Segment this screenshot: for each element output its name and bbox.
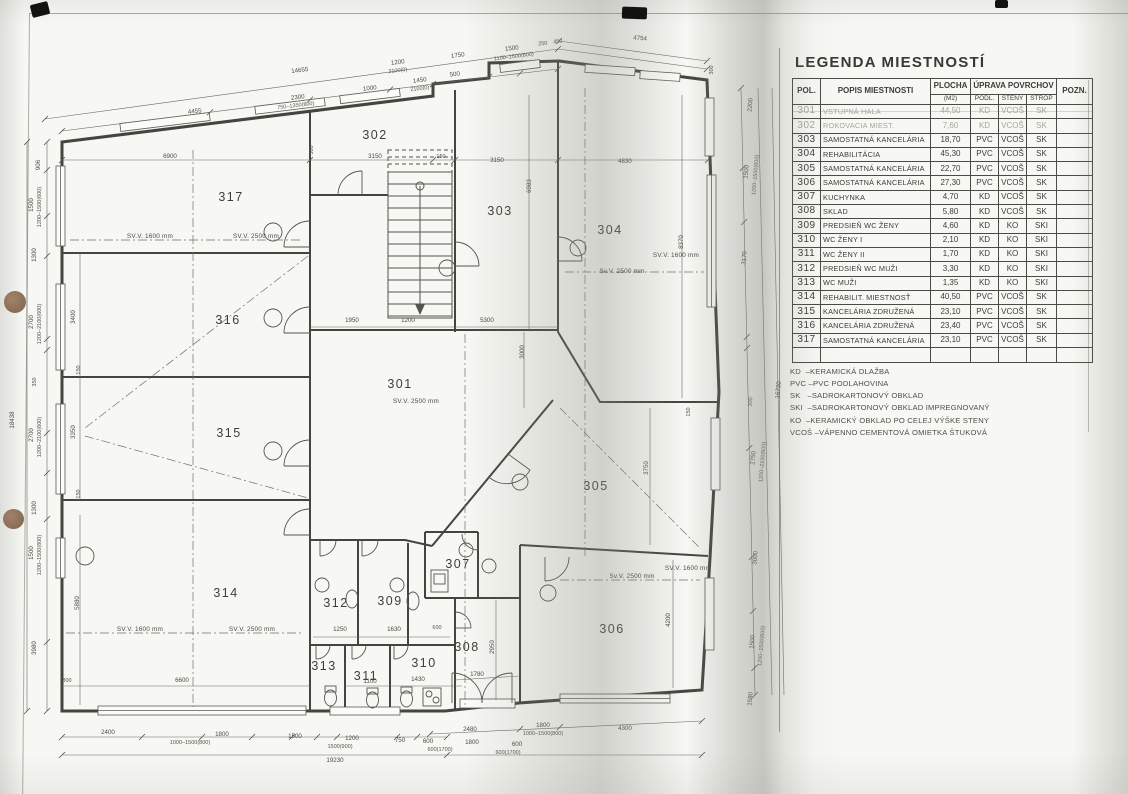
legend-cell-podl: KD <box>971 276 999 290</box>
dimension-label: 500 <box>449 70 461 78</box>
legend-cell-strop: SK <box>1027 305 1057 319</box>
dimension-label: 1500 <box>288 733 302 740</box>
legend-cell-pozn <box>1057 290 1093 304</box>
legend-note: SK –SADROKARTONOVÝ OBKLAD <box>790 390 990 402</box>
dimension-label: 1300 <box>31 248 38 262</box>
legend-cell-pozn <box>1057 233 1093 247</box>
room-number: 313 <box>311 659 336 673</box>
room-number: 303 <box>487 204 512 218</box>
legend-cell-strop: SK <box>1027 319 1057 333</box>
dimension-label: 1200 <box>391 58 406 67</box>
dimension-label: 600(1700) <box>427 747 452 753</box>
legend-cell-plocha: 27,30 <box>931 176 971 190</box>
legend-cell-steny: KO <box>999 247 1027 261</box>
dimension-label: 1200–1500(800) <box>37 535 43 576</box>
legend-cell-steny: VCOŠ <box>999 333 1027 347</box>
punch-hole-upper <box>4 291 26 313</box>
room-number: 307 <box>445 557 470 571</box>
legend-row: 301VSTUPNÁ HALA44,50KDVCOŠSK <box>793 105 1093 119</box>
dimension-label: 8370 <box>678 235 685 249</box>
legend-cell-pol: 316 <box>793 319 821 333</box>
legend-cell-pol: 315 <box>793 305 821 319</box>
legend-table: POL. POPIS MIESTNOSTI PLOCHA ÚPRAVA POVR… <box>792 78 1093 363</box>
ceiling-height-label: SV.V. 1600 mm <box>653 252 699 259</box>
legend-cell-popis: KUCHYNKA <box>821 190 931 204</box>
legend-header-strop: STROP <box>1027 95 1057 105</box>
legend-header-plocha: PLOCHA <box>931 79 971 95</box>
legend-cell-pozn <box>1057 333 1093 347</box>
legend-row: 302ROKOVACIA MIEST.7,60KDVCOŠSK <box>793 119 1093 133</box>
legend-cell-strop: SK <box>1027 190 1057 204</box>
dimension-label: 1800 <box>536 722 550 729</box>
legend-cell-strop: SKI <box>1027 247 1057 261</box>
legend-cell-podl: KD <box>971 233 999 247</box>
dimension-label: 3400 <box>70 310 77 324</box>
legend-row: 308SKLAD5,80KDVCOŠSK <box>793 205 1093 219</box>
dimension-label: 2950 <box>489 640 496 654</box>
legend-cell-podl: PVC <box>971 333 999 347</box>
dimension-label: 1500 <box>28 546 35 560</box>
dimension-label: 2100(0) <box>388 67 408 75</box>
dimension-label: 3000 <box>519 345 526 359</box>
dimension-label: 600 <box>512 741 523 748</box>
legend-cell-pozn <box>1057 190 1093 204</box>
dimension-label: 1580 <box>746 691 754 706</box>
room-number: 317 <box>218 190 243 204</box>
legend-cell-empty <box>793 348 821 363</box>
ceiling-height-label: SV.V. 1600 mm <box>127 233 173 240</box>
dimension-label: 1430 <box>411 676 425 683</box>
dimension-label: 150 <box>76 365 82 374</box>
legend-cell-plocha: 23,10 <box>931 333 971 347</box>
legend-row: 312PREDSIEŇ WC MUŽI3,30KDKOSKI <box>793 262 1093 276</box>
legend-cell-steny: VCOŠ <box>999 119 1027 133</box>
legend-cell-pozn <box>1057 205 1093 219</box>
legend-cell-steny: VCOŠ <box>999 290 1027 304</box>
legend-cell-pozn <box>1057 105 1093 119</box>
legend-cell-pozn <box>1057 247 1093 261</box>
dimension-label: 1500 <box>742 164 750 179</box>
ceiling-height-label: Sv.V. 2500 mm <box>609 573 654 580</box>
legend-cell-pol: 310 <box>793 233 821 247</box>
legend-cell-podl: PVC <box>971 176 999 190</box>
scan-blot-top-center <box>622 7 647 20</box>
legend-cell-podl: PVC <box>971 133 999 147</box>
legend-cell-popis: KANCELÁRIA ZDRUŽENÁ <box>821 319 931 333</box>
dimension-label: 350 <box>32 377 38 386</box>
dimension-label: 1500 <box>28 198 35 212</box>
dimension-label: 4754 <box>633 35 648 43</box>
legend-row: 305SAMOSTATNÁ KANCELÁRIA22,70PVCVCOŠSK <box>793 162 1093 176</box>
legend-row: 309PREDSIEŇ WC ŽENY4,60KDKOSKI <box>793 219 1093 233</box>
legend-cell-steny: VCOŠ <box>999 205 1027 219</box>
legend-header-steny: STENY <box>999 95 1027 105</box>
dimension-label: 1200–2100(600) <box>37 304 43 345</box>
dimension-label: 450 <box>553 38 563 45</box>
legend-cell-pol: 311 <box>793 247 821 261</box>
legend-cell-pozn <box>1057 176 1093 190</box>
dimension-label: 1750 <box>451 51 466 60</box>
dimension-label: 2700 <box>28 428 35 442</box>
legend-cell-pozn <box>1057 262 1093 276</box>
ceiling-height-label: SV.V. 2500 mm <box>393 398 439 405</box>
legend-cell-pozn <box>1057 276 1093 290</box>
room-number: 309 <box>377 594 402 608</box>
legend-cell-plocha: 40,50 <box>931 290 971 304</box>
room-number: 301 <box>387 377 412 391</box>
legend-cell-popis: REHABILIT. MIESTNOSŤ <box>821 290 931 304</box>
dimension-label: 1780 <box>470 671 484 678</box>
dimension-label: 150 <box>436 154 445 160</box>
legend-row: 317SAMOSTATNÁ KANCELÁRIA23,10PVCVCOŠSK <box>793 333 1093 347</box>
dimension-label: 1500 <box>748 634 756 649</box>
legend-cell-empty <box>931 348 971 363</box>
legend-cell-pozn <box>1057 305 1093 319</box>
dimension-label: 250 <box>538 40 548 47</box>
legend-cell-pol: 301 <box>793 105 821 119</box>
scan-blot-top-right <box>995 0 1008 8</box>
legend-cell-popis: WC ŽENY I <box>821 233 931 247</box>
legend-cell-plocha: 44,50 <box>931 105 971 119</box>
legend-notes: KD –KERAMICKÁ DLAŽBAPVC –PVC PODLAHOVINA… <box>790 366 990 439</box>
dimension-label: 1200–2100(600) <box>37 417 43 458</box>
dimension-label: 1200 <box>345 735 359 742</box>
dimension-label: 750 <box>395 737 406 744</box>
legend-cell-pozn <box>1057 119 1093 133</box>
legend-cell-popis: KANCELÁRIA ZDRUŽENÁ <box>821 305 931 319</box>
dimension-label: 5880 <box>74 596 81 610</box>
legend-row: 315KANCELÁRIA ZDRUŽENÁ23,10PVCVCOŠSK <box>793 305 1093 319</box>
legend-cell-popis: SAMOSTATNÁ KANCELÁRIA <box>821 133 931 147</box>
legend-cell-podl: KD <box>971 205 999 219</box>
legend-cell-podl: PVC <box>971 319 999 333</box>
axis-lines <box>66 88 704 707</box>
room-number: 316 <box>215 313 240 327</box>
legend-cell-steny: KO <box>999 219 1027 233</box>
legend-cell-pol: 306 <box>793 176 821 190</box>
legend-cell-pol: 302 <box>793 119 821 133</box>
dimension-label: 3000 <box>751 550 759 565</box>
dimension-label: 3750 <box>643 461 650 475</box>
legend-cell-empty <box>999 348 1027 363</box>
legend-cell-podl: PVC <box>971 290 999 304</box>
legend-cell-popis: VSTUPNÁ HALA <box>821 105 931 119</box>
legend-cell-popis: PREDSIEŇ WC MUŽI <box>821 262 931 276</box>
room-number: 306 <box>599 622 624 636</box>
legend-cell-plocha: 4,70 <box>931 190 971 204</box>
legend-row: 306SAMOSTATNÁ KANCELÁRIA27,30PVCVCOŠSK <box>793 176 1093 190</box>
dimension-label: 3170 <box>740 250 748 265</box>
dimension-label: 300 <box>62 678 71 684</box>
legend-cell-plocha: 1,35 <box>931 276 971 290</box>
punch-hole-lower <box>3 509 24 529</box>
legend-cell-popis: WC MUŽI <box>821 276 931 290</box>
dimension-label: 2480 <box>463 726 477 733</box>
dimension-label: 14655 <box>291 66 309 75</box>
legend-cell-popis: ROKOVACIA MIEST. <box>821 119 931 133</box>
legend-cell-podl: KD <box>971 190 999 204</box>
legend-row: 316KANCELÁRIA ZDRUŽENÁ23,40PVCVCOŠSK <box>793 319 1093 333</box>
dimension-label: 3150 <box>368 153 382 160</box>
legend-cell-podl: PVC <box>971 147 999 161</box>
dimension-label: 1450 <box>413 76 428 85</box>
room-number: 302 <box>362 128 387 142</box>
room-number: 312 <box>323 596 348 610</box>
legend-cell-steny: VCOŠ <box>999 305 1027 319</box>
dimension-label: 1200–1500(600) <box>751 154 761 195</box>
dimension-label: 150 <box>686 407 692 416</box>
legend-cell-steny: VCOŠ <box>999 162 1027 176</box>
legend-cell-plocha: 22,70 <box>931 162 971 176</box>
legend-header-plocha-unit: (M2) <box>931 95 971 105</box>
legend-cell-empty <box>821 348 931 363</box>
dimension-label: 1500 <box>505 44 520 53</box>
legend-cell-empty <box>1027 348 1057 363</box>
dimension-label: 1200–1500(600) <box>757 625 767 666</box>
legend-cell-popis: REHABILITÁCIA <box>821 147 931 161</box>
dimension-label: 2700 <box>28 315 35 329</box>
legend-cell-empty <box>971 348 999 363</box>
ceiling-height-label: SV.V. 2500 mm <box>233 233 279 240</box>
legend-cell-steny: VCOŠ <box>999 176 1027 190</box>
legend-cell-strop: SKI <box>1027 276 1057 290</box>
legend-row: 313WC MUŽI1,35KDKOSKI <box>793 276 1093 290</box>
legend-cell-strop: SK <box>1027 176 1057 190</box>
legend-cell-pozn <box>1057 319 1093 333</box>
dimension-label: 1800 <box>215 731 229 738</box>
legend-cell-strop: SK <box>1027 133 1057 147</box>
legend-cell-pol: 317 <box>793 333 821 347</box>
legend-cell-steny: VCOŠ <box>999 105 1027 119</box>
legend-cell-popis: SAMOSTATNÁ KANCELÁRIA <box>821 333 931 347</box>
legend-cell-strop: SKI <box>1027 262 1057 276</box>
ceiling-height-label: SV.V. 1600 mm <box>117 626 163 633</box>
legend-cell-steny: KO <box>999 276 1027 290</box>
legend-cell-pol: 303 <box>793 133 821 147</box>
room-number: 308 <box>454 640 479 654</box>
legend-cell-popis: PREDSIEŇ WC ŽENY <box>821 219 931 233</box>
dimension-label: 600 <box>432 625 441 631</box>
legend-cell-steny: VCOŠ <box>999 190 1027 204</box>
legend-cell-plocha: 5,80 <box>931 205 971 219</box>
legend-cell-plocha: 1,70 <box>931 247 971 261</box>
legend-cell-podl: PVC <box>971 162 999 176</box>
dimension-label: 1100 <box>363 678 377 685</box>
legend-row: 307KUCHYNKA4,70KDVCOŠSK <box>793 190 1093 204</box>
legend-header-pol: POL. <box>793 79 821 105</box>
dimension-label: 6900 <box>163 153 177 160</box>
legend-cell-pol: 312 <box>793 262 821 276</box>
legend-cell-plocha: 7,60 <box>931 119 971 133</box>
legend-header-pozn: POZN. <box>1057 79 1093 105</box>
dimension-label: 3350 <box>70 425 77 439</box>
room-number: 315 <box>216 426 241 440</box>
dimension-label: 300 <box>709 65 715 74</box>
legend-cell-strop: SK <box>1027 333 1057 347</box>
room-number: 310 <box>411 656 436 670</box>
legend-row: 311WC ŽENY II1,70KDKOSKI <box>793 247 1093 261</box>
legend-cell-pozn <box>1057 147 1093 161</box>
legend-row-empty <box>793 348 1093 363</box>
legend-note: KD –KERAMICKÁ DLAŽBA <box>790 366 990 378</box>
dimension-label: 4300 <box>618 725 632 732</box>
legend-cell-steny: VCOŠ <box>999 133 1027 147</box>
legend-cell-strop: SK <box>1027 119 1057 133</box>
fixtures <box>76 223 586 708</box>
legend-cell-plocha: 3,30 <box>931 262 971 276</box>
legend-cell-pol: 307 <box>793 190 821 204</box>
dimension-label: 1630 <box>387 626 401 633</box>
legend-cell-strop: SK <box>1027 205 1057 219</box>
dimension-label: 1000–1500(800) <box>523 731 564 737</box>
plan-labels: 3013023033043053063073083093103113123133… <box>9 35 783 764</box>
staircase <box>388 150 452 318</box>
legend-cell-plocha: 23,40 <box>931 319 971 333</box>
dimension-label: 16720 <box>774 380 783 398</box>
legend-cell-popis: WC ŽENY II <box>821 247 931 261</box>
room-number: 305 <box>583 479 608 493</box>
legend-cell-podl: KD <box>971 262 999 276</box>
dimension-label: 2200 <box>746 97 754 112</box>
legend-cell-popis: SAMOSTATNÁ KANCELÁRIA <box>821 162 931 176</box>
legend-cell-podl: KD <box>971 105 999 119</box>
dimension-label: 2100(0) <box>410 85 430 93</box>
legend-cell-strop: SKI <box>1027 219 1057 233</box>
legend-cell-empty <box>1057 348 1093 363</box>
dimension-label: 1300 <box>31 501 38 515</box>
dimension-label: 6600 <box>175 677 189 684</box>
legend-cell-podl: KD <box>971 247 999 261</box>
legend-cell-pol: 308 <box>793 205 821 219</box>
legend-cell-pol: 309 <box>793 219 821 233</box>
legend-title: LEGENDA MIESTNOSTÍ <box>795 54 985 71</box>
legend-cell-plocha: 2,10 <box>931 233 971 247</box>
legend-cell-pozn <box>1057 162 1093 176</box>
dimension-label: 300 <box>748 397 755 407</box>
legend-header-uprava: ÚPRAVA POVRCHOV <box>971 79 1057 95</box>
legend-header-podl: PODL. <box>971 95 999 105</box>
dimension-label: 3980 <box>31 641 38 655</box>
dimension-label: 1250 <box>333 626 347 633</box>
legend-row: 314REHABILIT. MIESTNOSŤ40,50PVCVCOŠSK <box>793 290 1093 304</box>
dimension-label: 3150 <box>490 157 504 164</box>
dimension-label: 600(1700) <box>495 750 520 756</box>
legend-cell-plocha: 18,70 <box>931 133 971 147</box>
floor-plan-drawing: 3013023033043053063073083093103113123133… <box>0 0 790 794</box>
legend-cell-steny: VCOŠ <box>999 319 1027 333</box>
legend-cell-pozn <box>1057 133 1093 147</box>
ceiling-height-label: Sv.V. 2500 mm <box>599 268 644 275</box>
legend-cell-podl: KD <box>971 119 999 133</box>
legend-cell-podl: KD <box>971 219 999 233</box>
dimension-label: 1500(900) <box>327 744 352 750</box>
dimension-label: 300 <box>309 145 315 154</box>
legend-cell-steny: KO <box>999 233 1027 247</box>
legend-cell-popis: SAMOSTATNÁ KANCELÁRIA <box>821 176 931 190</box>
legend-cell-strop: SK <box>1027 105 1057 119</box>
legend-note: VCOŠ –VÁPENNO CEMENTOVÁ OMIETKA ŠTUKOVÁ <box>790 427 990 439</box>
legend-note: SKI –SADROKARTONOVÝ OBKLAD IMPREGNOVANÝ <box>790 402 990 414</box>
legend-cell-popis: SKLAD <box>821 205 931 219</box>
legend-cell-pol: 314 <box>793 290 821 304</box>
dimension-label: 1200–1500(600) <box>37 187 43 228</box>
legend-row: 303SAMOSTATNÁ KANCELÁRIA18,70PVCVCOŠSK <box>793 133 1093 147</box>
legend-cell-strop: SK <box>1027 290 1057 304</box>
legend-cell-steny: KO <box>999 262 1027 276</box>
dimension-label: 18438 <box>9 411 16 429</box>
dimension-label: 1000–1500(800) <box>170 740 211 746</box>
dimension-label: 5300 <box>480 317 494 324</box>
dimension-label: 4200 <box>665 613 672 627</box>
dimension-label: 2750 <box>749 450 757 465</box>
legend-row: 310WC ŽENY I2,10KDKOSKI <box>793 233 1093 247</box>
room-number: 304 <box>597 223 622 237</box>
legend-cell-podl: PVC <box>971 305 999 319</box>
dimension-label: 19230 <box>326 757 344 764</box>
legend-note: PVC –PVC PODLAHOVINA <box>790 378 990 390</box>
legend-cell-plocha: 4,60 <box>931 219 971 233</box>
dimension-label: 1950 <box>345 317 359 324</box>
legend-cell-pozn <box>1057 219 1093 233</box>
dimension-label: 1200 <box>401 317 415 324</box>
legend-cell-strop: SK <box>1027 147 1057 161</box>
legend-cell-pol: 305 <box>793 162 821 176</box>
dimension-label: 4830 <box>618 158 632 165</box>
room-number: 314 <box>213 586 238 600</box>
legend-cell-pol: 304 <box>793 147 821 161</box>
dimension-label: 906 <box>35 159 42 170</box>
legend-cell-plocha: 23,10 <box>931 305 971 319</box>
legend-row: 304REHABILITÁCIA45,30PVCVCOŠSK <box>793 147 1093 161</box>
legend-cell-plocha: 45,30 <box>931 147 971 161</box>
legend-cell-pol: 313 <box>793 276 821 290</box>
dimension-label: 2400 <box>101 729 115 736</box>
legend-header-popis: POPIS MIESTNOSTI <box>821 79 931 105</box>
ceiling-height-label: SV.V. 1600 mm <box>665 565 711 572</box>
legend-cell-steny: VCOŠ <box>999 147 1027 161</box>
doors <box>284 171 582 703</box>
dimension-label: 1800 <box>465 739 479 746</box>
dimension-label: 6983 <box>526 179 533 193</box>
legend-cell-strop: SK <box>1027 162 1057 176</box>
legend-note: KO –KERAMICKÝ OBKLAD PO CELEJ VÝŠKE STEN… <box>790 415 990 427</box>
dimension-label: 150 <box>76 489 82 498</box>
ceiling-height-label: SV.V. 2500 mm <box>229 626 275 633</box>
dimension-label: 600 <box>423 738 434 745</box>
legend-cell-strop: SKI <box>1027 233 1057 247</box>
